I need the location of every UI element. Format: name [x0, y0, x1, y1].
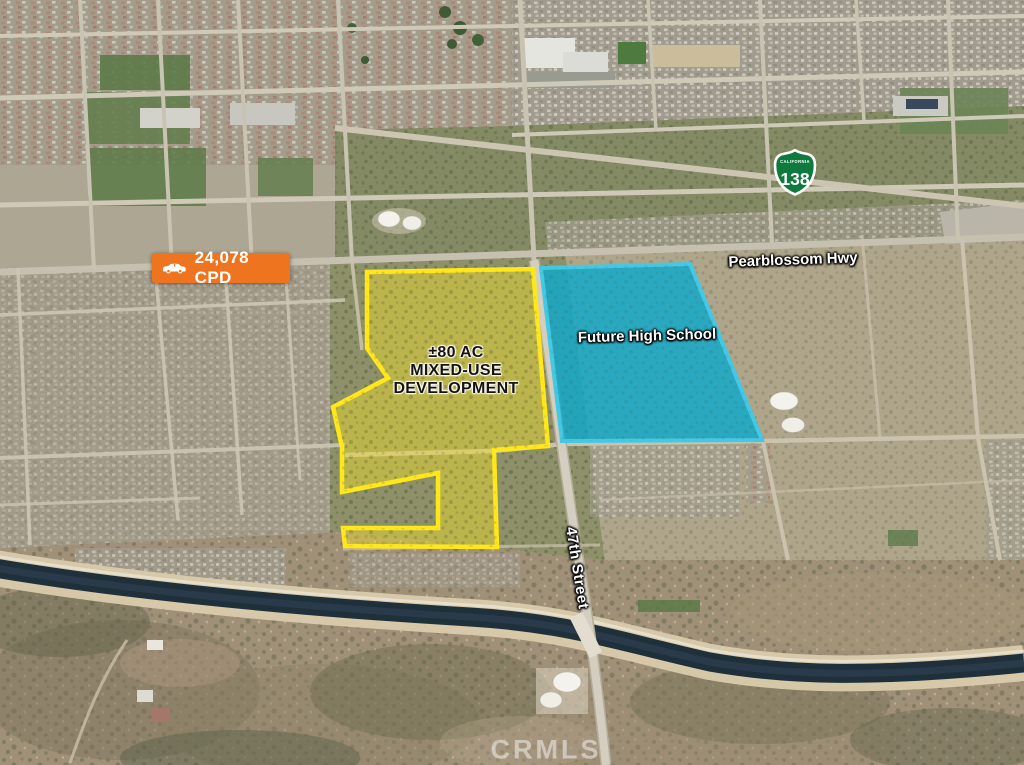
aerial-map-svg: CALIFORNIA 138: [0, 0, 1024, 765]
shield-route-number: 138: [780, 169, 809, 189]
shield-state-label: CALIFORNIA: [780, 159, 810, 164]
route-138-shield: CALIFORNIA 138: [775, 150, 815, 195]
aerial-photo: CALIFORNIA 138 24,078 CPD Pearblossom Hw…: [0, 0, 1024, 765]
